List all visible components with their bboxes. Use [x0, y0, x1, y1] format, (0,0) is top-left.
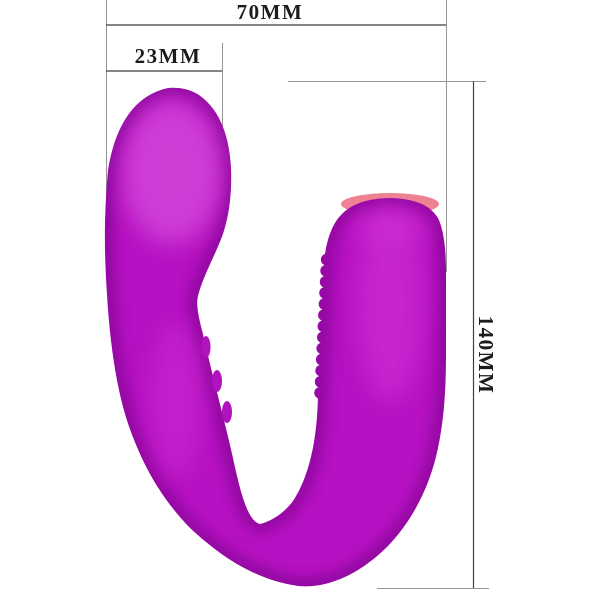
shaft-highlight — [150, 322, 202, 478]
shaft-ridge — [222, 401, 232, 423]
total-width-label: 70MM — [215, 0, 325, 24]
product-body — [105, 88, 446, 587]
shaft-ridge — [202, 336, 211, 358]
product-illustration — [0, 0, 600, 600]
dome-top-highlight — [348, 208, 432, 244]
dimension-diagram: 70MM 23MM 140MM — [0, 0, 600, 600]
total-height-label: 140MM — [474, 300, 498, 410]
head-width-label: 23MM — [113, 44, 223, 68]
shaft-ridge — [212, 370, 222, 392]
head-highlight — [122, 100, 222, 244]
